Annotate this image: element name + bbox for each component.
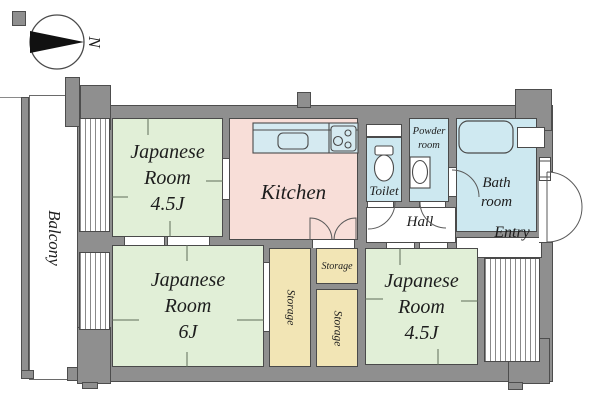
storage-left-label: Storage bbox=[283, 290, 298, 326]
room-kitchen: Kitchen bbox=[229, 118, 358, 240]
toilet-label: Toilet bbox=[369, 183, 398, 201]
room-japanese-6j: Japanese Room 6J bbox=[112, 245, 264, 367]
balcony-label-text: Balcony bbox=[44, 210, 64, 266]
powder-doorway bbox=[419, 202, 446, 207]
balcony-divider-block bbox=[12, 11, 26, 26]
bath-label: Bath room bbox=[481, 174, 512, 213]
room-japanese-bottom: Japanese Room 4.5J bbox=[365, 248, 478, 365]
wall-bump-top bbox=[297, 92, 311, 108]
room-japanese-top-label: Japanese Room 4.5J bbox=[130, 139, 204, 217]
entry-label: Entry bbox=[480, 221, 544, 245]
north-arrow-icon bbox=[30, 31, 84, 53]
pillar-bottom-left bbox=[77, 327, 111, 384]
room-japanese-bottom-label: Japanese Room 4.5J bbox=[384, 268, 458, 346]
storage-bottom: Storage bbox=[316, 289, 358, 367]
storage-bottom-label: Storage bbox=[330, 310, 345, 346]
meter-box-notch bbox=[517, 127, 545, 148]
storage-top-label: Storage bbox=[321, 260, 352, 273]
compass-circle bbox=[30, 15, 84, 69]
room-powder: Powder room bbox=[409, 118, 449, 202]
pillar-bottom-left-step bbox=[67, 367, 78, 381]
floor-plan: Balcony Japanese Room 4.5J Kitchen Toile… bbox=[0, 0, 600, 406]
pillar-bottom-left-foot bbox=[82, 382, 98, 389]
toilet-window bbox=[366, 124, 402, 137]
slider-jrtop-jr6j-a bbox=[124, 237, 165, 245]
room-toilet: Toilet bbox=[366, 137, 402, 202]
bath-side-window bbox=[539, 157, 551, 181]
slider-jr6j-storage bbox=[264, 262, 269, 332]
hall-label: Hall bbox=[392, 210, 448, 234]
pantry-doorway bbox=[312, 240, 355, 248]
slider-jrtop-jr6j-b bbox=[167, 237, 210, 245]
kitchen-label: Kitchen bbox=[261, 179, 326, 206]
balcony-label: Balcony bbox=[29, 95, 78, 380]
storage-left: Storage bbox=[269, 248, 311, 367]
pillar-top-left-a bbox=[65, 77, 80, 127]
storage-top: Storage bbox=[316, 248, 358, 284]
toilet-doorway bbox=[367, 202, 394, 207]
slider-jrbottom-hall-a bbox=[386, 243, 415, 248]
slider-jrtop-kitchen bbox=[223, 158, 229, 200]
compass: N bbox=[30, 15, 104, 69]
bath-doorway bbox=[449, 167, 456, 197]
compass-n-label: N bbox=[85, 35, 104, 49]
room-japanese-top: Japanese Room 4.5J bbox=[112, 118, 223, 237]
window-top-left bbox=[79, 118, 110, 232]
room-japanese-6j-label: Japanese Room 6J bbox=[151, 267, 225, 345]
powder-label: Powder room bbox=[413, 119, 446, 152]
pillar-bottom-right-foot bbox=[508, 382, 523, 390]
porch-hatch-area bbox=[484, 258, 540, 362]
window-bottom-left bbox=[79, 252, 110, 330]
balcony-rail bbox=[21, 97, 29, 378]
slider-jrbottom-hall-b bbox=[419, 243, 448, 248]
